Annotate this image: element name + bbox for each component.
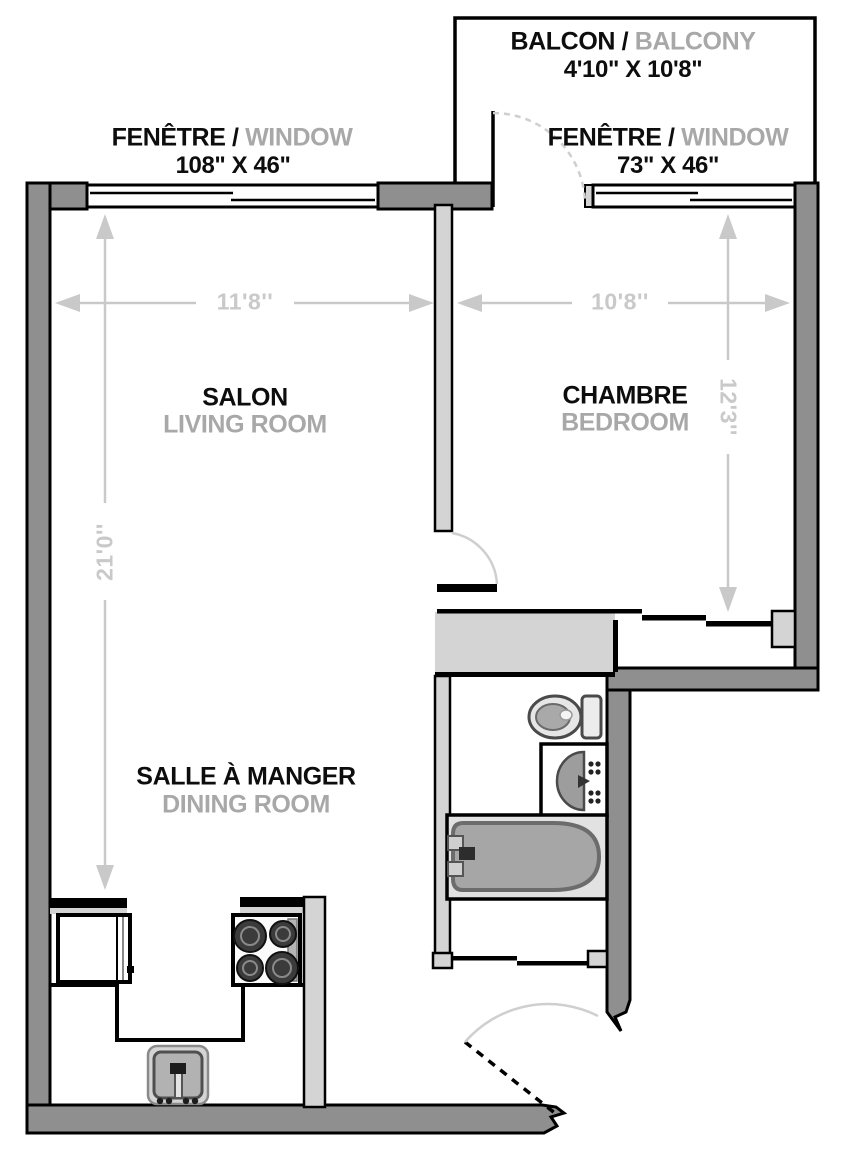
interior-walls: [50, 205, 795, 1107]
bathtub-knob-2: [448, 862, 463, 876]
exterior-walls: [27, 183, 818, 1133]
hallway-wall-bottom: [435, 672, 615, 677]
bathtub-spout: [459, 847, 475, 860]
hallway-wall-top: [437, 609, 642, 614]
bedroom-door-leaf: [437, 584, 497, 592]
vanity-sink-icon: [541, 744, 607, 816]
bedroom-label-fr: CHAMBRE: [563, 382, 688, 411]
label-separator: /: [232, 124, 239, 152]
bedroom-label-en: BEDROOM: [561, 409, 689, 438]
living-room-label-fr: SALON: [202, 384, 288, 413]
dining-room-label-en: DINING ROOM: [162, 791, 330, 820]
wall-bathroom-east-jagged: [607, 690, 630, 1031]
dining-room-label-fr: SALLE À MANGER: [136, 763, 355, 792]
floor-plan-canvas: [0, 0, 850, 1159]
wall-left: [27, 183, 50, 1133]
refrigerator-icon: [58, 915, 134, 982]
refrigerator-body: [58, 915, 130, 982]
window-right-icon: [585, 185, 795, 207]
hallway-wall-right: [613, 620, 618, 672]
label-separator: /: [622, 28, 629, 56]
bedroom-closet-door-panel-1: [642, 615, 706, 621]
kitchen-wall-east: [304, 897, 325, 1107]
bedroom-closet-wall-cap: [772, 611, 795, 647]
kitchen-counter-edge: [50, 985, 304, 1040]
window-left-frame: [87, 185, 378, 207]
floor-plan: BALCON / BALCONY 4'10" X 10'8" FENÊTRE /…: [0, 0, 850, 1159]
bathroom-door-panel-2: [517, 961, 588, 966]
bedroom-closet-door-panel-2: [706, 621, 772, 627]
kitchen-sink-faucet: [175, 1071, 182, 1098]
entry-door-icon: [465, 1004, 598, 1114]
bedroom-door-swing-arc: [452, 533, 497, 584]
kitchen-wall-top-left: [50, 898, 127, 908]
toilet-tank: [582, 696, 601, 738]
bathtub-icon: [447, 815, 607, 899]
dimension-bedroom-length: 12'3'': [715, 378, 742, 436]
entry-door-swing-arc: [465, 1004, 598, 1042]
living-room-label-en: LIVING ROOM: [163, 411, 327, 440]
hallway-closet-fill: [435, 612, 615, 676]
bathroom-door-panel-1: [452, 956, 517, 961]
window-left-size: 108" X 46": [176, 152, 291, 180]
stove-icon: [233, 915, 300, 985]
wall-right: [795, 183, 818, 690]
window-right-size: 73" X 46": [617, 152, 719, 180]
wall-middle: [435, 205, 452, 531]
wall-step-bedroom-south: [607, 668, 818, 690]
dimension-bedroom-width: 10'8'': [591, 289, 649, 316]
balcony-size: 4'10" X 10'8": [564, 56, 702, 84]
balcony-label: BALCON / BALCONY: [511, 28, 756, 57]
window-left-label: FENÊTRE / WINDOW: [112, 124, 353, 153]
bathroom-door-cap-left: [433, 953, 452, 968]
refrigerator-handle: [127, 966, 134, 973]
window-right-frame: [593, 185, 795, 207]
dimension-living-width: 11'8'': [217, 289, 274, 316]
bathroom-door-cap-right: [588, 951, 607, 967]
dimension-living-length: 21'0'': [92, 523, 119, 581]
kitchen-sink-icon: [148, 1046, 208, 1104]
entry-door-leaf: [465, 1042, 556, 1114]
toilet-icon: [529, 696, 601, 738]
window-right-label: FENÊTRE / WINDOW: [548, 124, 789, 153]
wall-bottom-jagged: [27, 1105, 564, 1133]
window-left-icon: [87, 185, 378, 207]
label-separator: /: [668, 124, 675, 152]
